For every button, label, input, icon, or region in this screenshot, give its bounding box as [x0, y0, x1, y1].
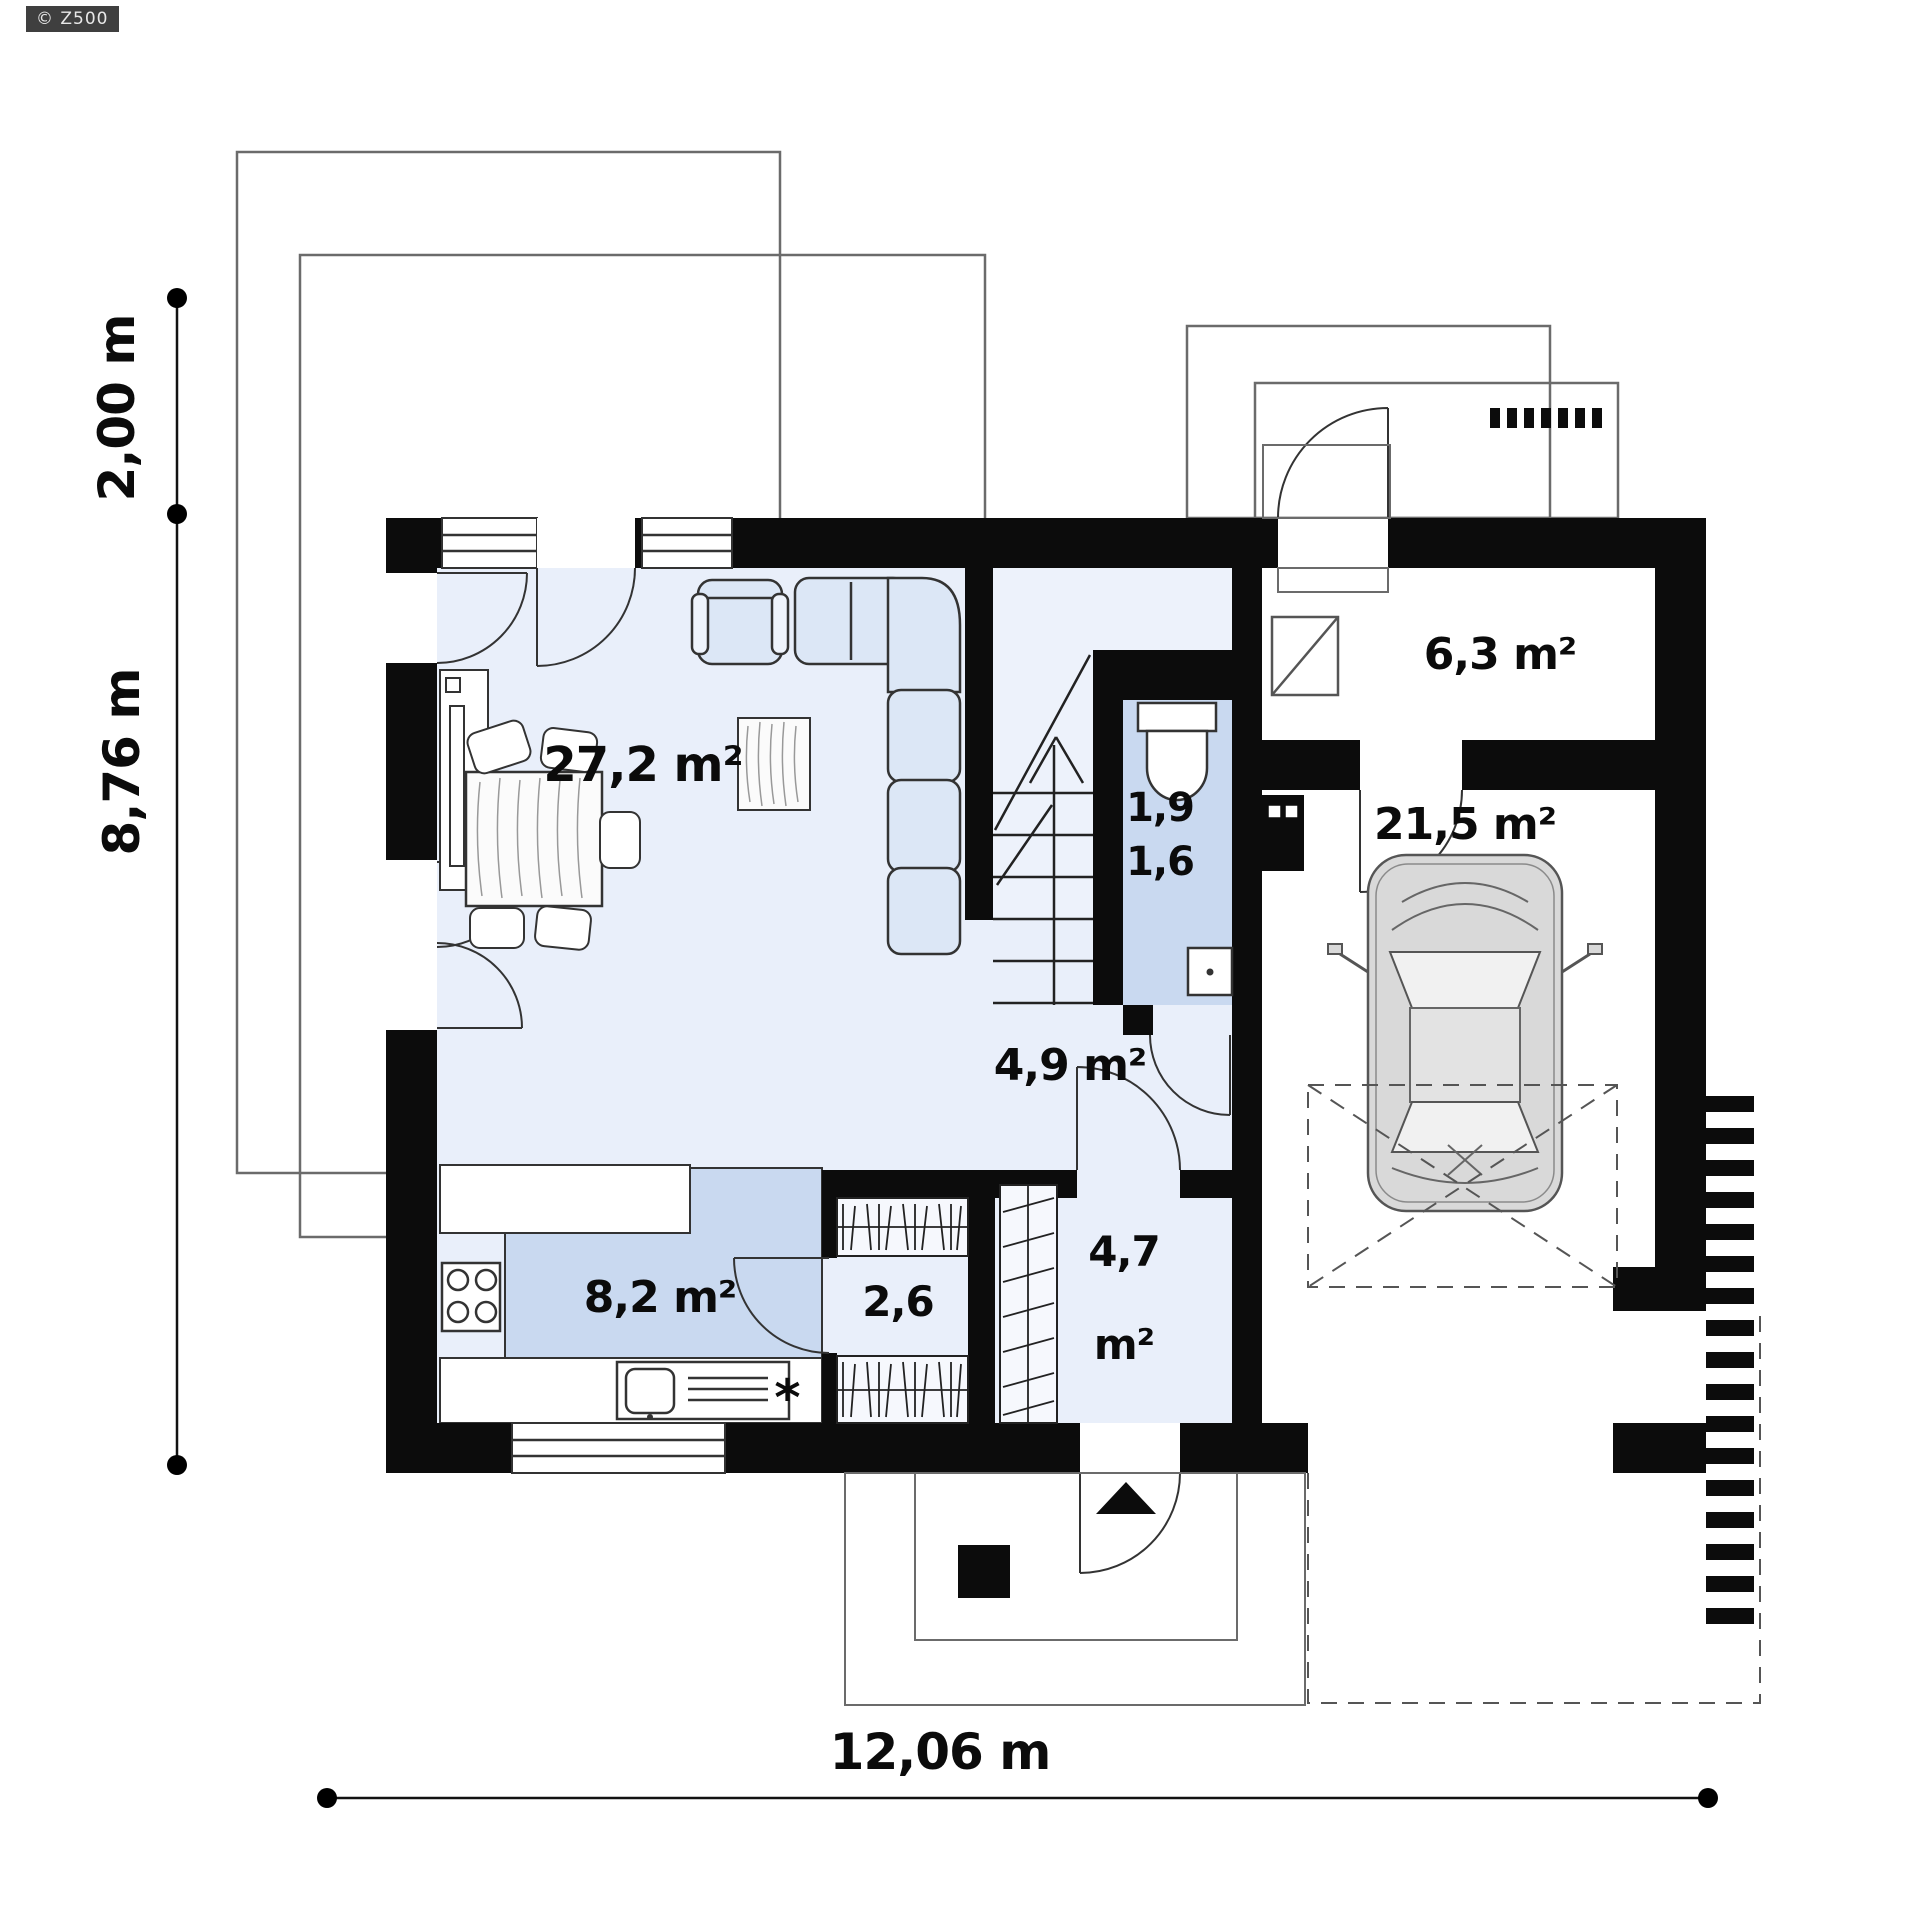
wall-right — [1655, 568, 1706, 1267]
porch-column — [958, 1545, 1010, 1598]
floor-plan-page: © Z500 2,00 m 8,76 m 12,06 m 27,2 m² 8,2… — [0, 0, 1920, 1920]
stove-icon — [442, 1263, 500, 1331]
pantry-area-label: 2,6 — [862, 1281, 933, 1323]
entrance-arrow-icon — [1096, 1482, 1156, 1514]
entry-steps-dotted-icon — [1490, 408, 1602, 428]
wall-entry-top-jamb — [1180, 1170, 1232, 1198]
wall-pantry-top — [822, 1170, 995, 1198]
wall-pantry-left-lower — [822, 1353, 837, 1423]
chair-icon — [600, 812, 640, 868]
vestibule-area-label: 6,3 m² — [1424, 633, 1576, 677]
wall-center-vertical — [1232, 518, 1262, 1473]
wall-wc-bottom — [1123, 1005, 1153, 1035]
entry-area-label-line2: m² — [1094, 1324, 1154, 1366]
window-top-1 — [442, 518, 537, 568]
chair-icon — [534, 905, 592, 950]
door-vestibule-entry — [1278, 408, 1388, 518]
side-table-icon — [738, 718, 810, 810]
kitchen-counter-top — [440, 1165, 690, 1233]
brand-badge: © Z500 — [26, 6, 119, 32]
floor-plan-drawing — [0, 0, 1920, 1920]
washbasin-icon — [1188, 948, 1232, 995]
car-icon — [1328, 855, 1602, 1211]
wall-pantry-left-upper — [822, 1198, 837, 1258]
pergola-comb-icon — [1706, 1096, 1754, 1624]
wall-pantry-right — [968, 1198, 995, 1423]
armchair-icon — [692, 580, 788, 664]
porch-outline-top-right-inner — [1255, 383, 1618, 518]
wall-vestibule-garage-left — [1262, 740, 1360, 790]
hall-area-label: 4,9 m² — [994, 1044, 1146, 1088]
shower-icon — [1272, 617, 1338, 695]
window-bottom-kitchen — [512, 1423, 725, 1473]
opening-left-french-door — [386, 860, 437, 1030]
kitchen-note-asterisk: * — [774, 1373, 799, 1423]
wall-wc-top — [1093, 650, 1232, 700]
entry-step-inside — [1278, 568, 1388, 592]
dim-label-width-total: 12,06 m — [830, 1727, 1051, 1777]
living-area-label: 27,2 m² — [543, 741, 742, 789]
sink-icon — [617, 1362, 789, 1420]
wall-wc-left — [1093, 700, 1123, 1005]
wall-bottom-right-corner — [1613, 1423, 1706, 1473]
kitchen-area-label: 8,2 m² — [584, 1276, 736, 1320]
wc-area-label-upper: 1,9 — [1126, 788, 1194, 828]
wc-area-label-lower: 1,6 — [1126, 842, 1194, 882]
window-top-2 — [642, 518, 732, 568]
chair-icon — [470, 908, 524, 948]
entry-step-top — [1263, 445, 1390, 518]
opening-left-door — [386, 573, 437, 663]
opening-vestibule-entry-door — [1278, 518, 1388, 568]
wall-right-jog — [1613, 1267, 1706, 1311]
wall-vestibule-garage-right — [1462, 740, 1655, 790]
opening-top-terrace-door — [537, 518, 635, 568]
dim-label-height-offset: 2,00 m — [92, 315, 142, 502]
entry-area-label-line1: 4,7 — [1088, 1231, 1159, 1273]
entrance-porch — [845, 1473, 1305, 1705]
wall-living-stairs — [965, 518, 993, 920]
garage-area-label: 21,5 m² — [1374, 803, 1556, 847]
dim-label-height-total: 8,76 m — [97, 669, 147, 856]
wall-bottom-left — [386, 1423, 1080, 1473]
